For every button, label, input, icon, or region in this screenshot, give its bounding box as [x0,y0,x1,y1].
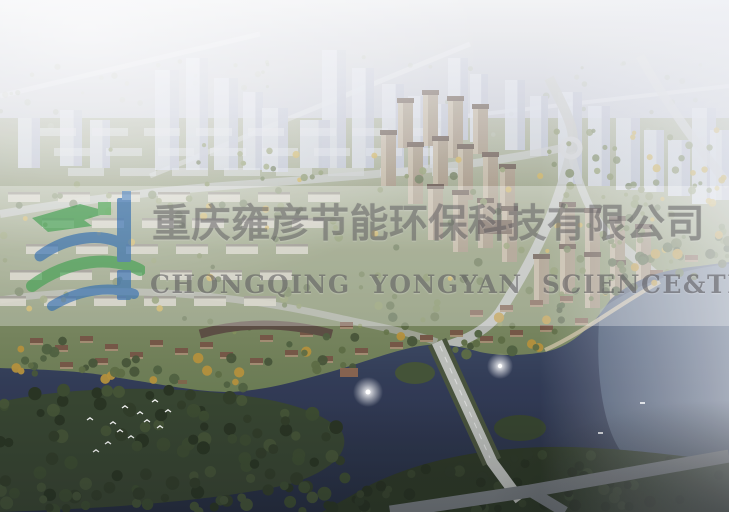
watermark-company-name-en: CHONGQING YONGYAN SCIENCE&TECHNOLOGY [150,270,729,300]
watermark-company-name-cn: 重庆雍彦节能环保科技有限公司 [152,201,705,247]
yongyan-logo-icon [22,190,145,312]
aerial-rendering-screenshot: { "image": { "type": "aerial-architectur… [0,0,729,512]
